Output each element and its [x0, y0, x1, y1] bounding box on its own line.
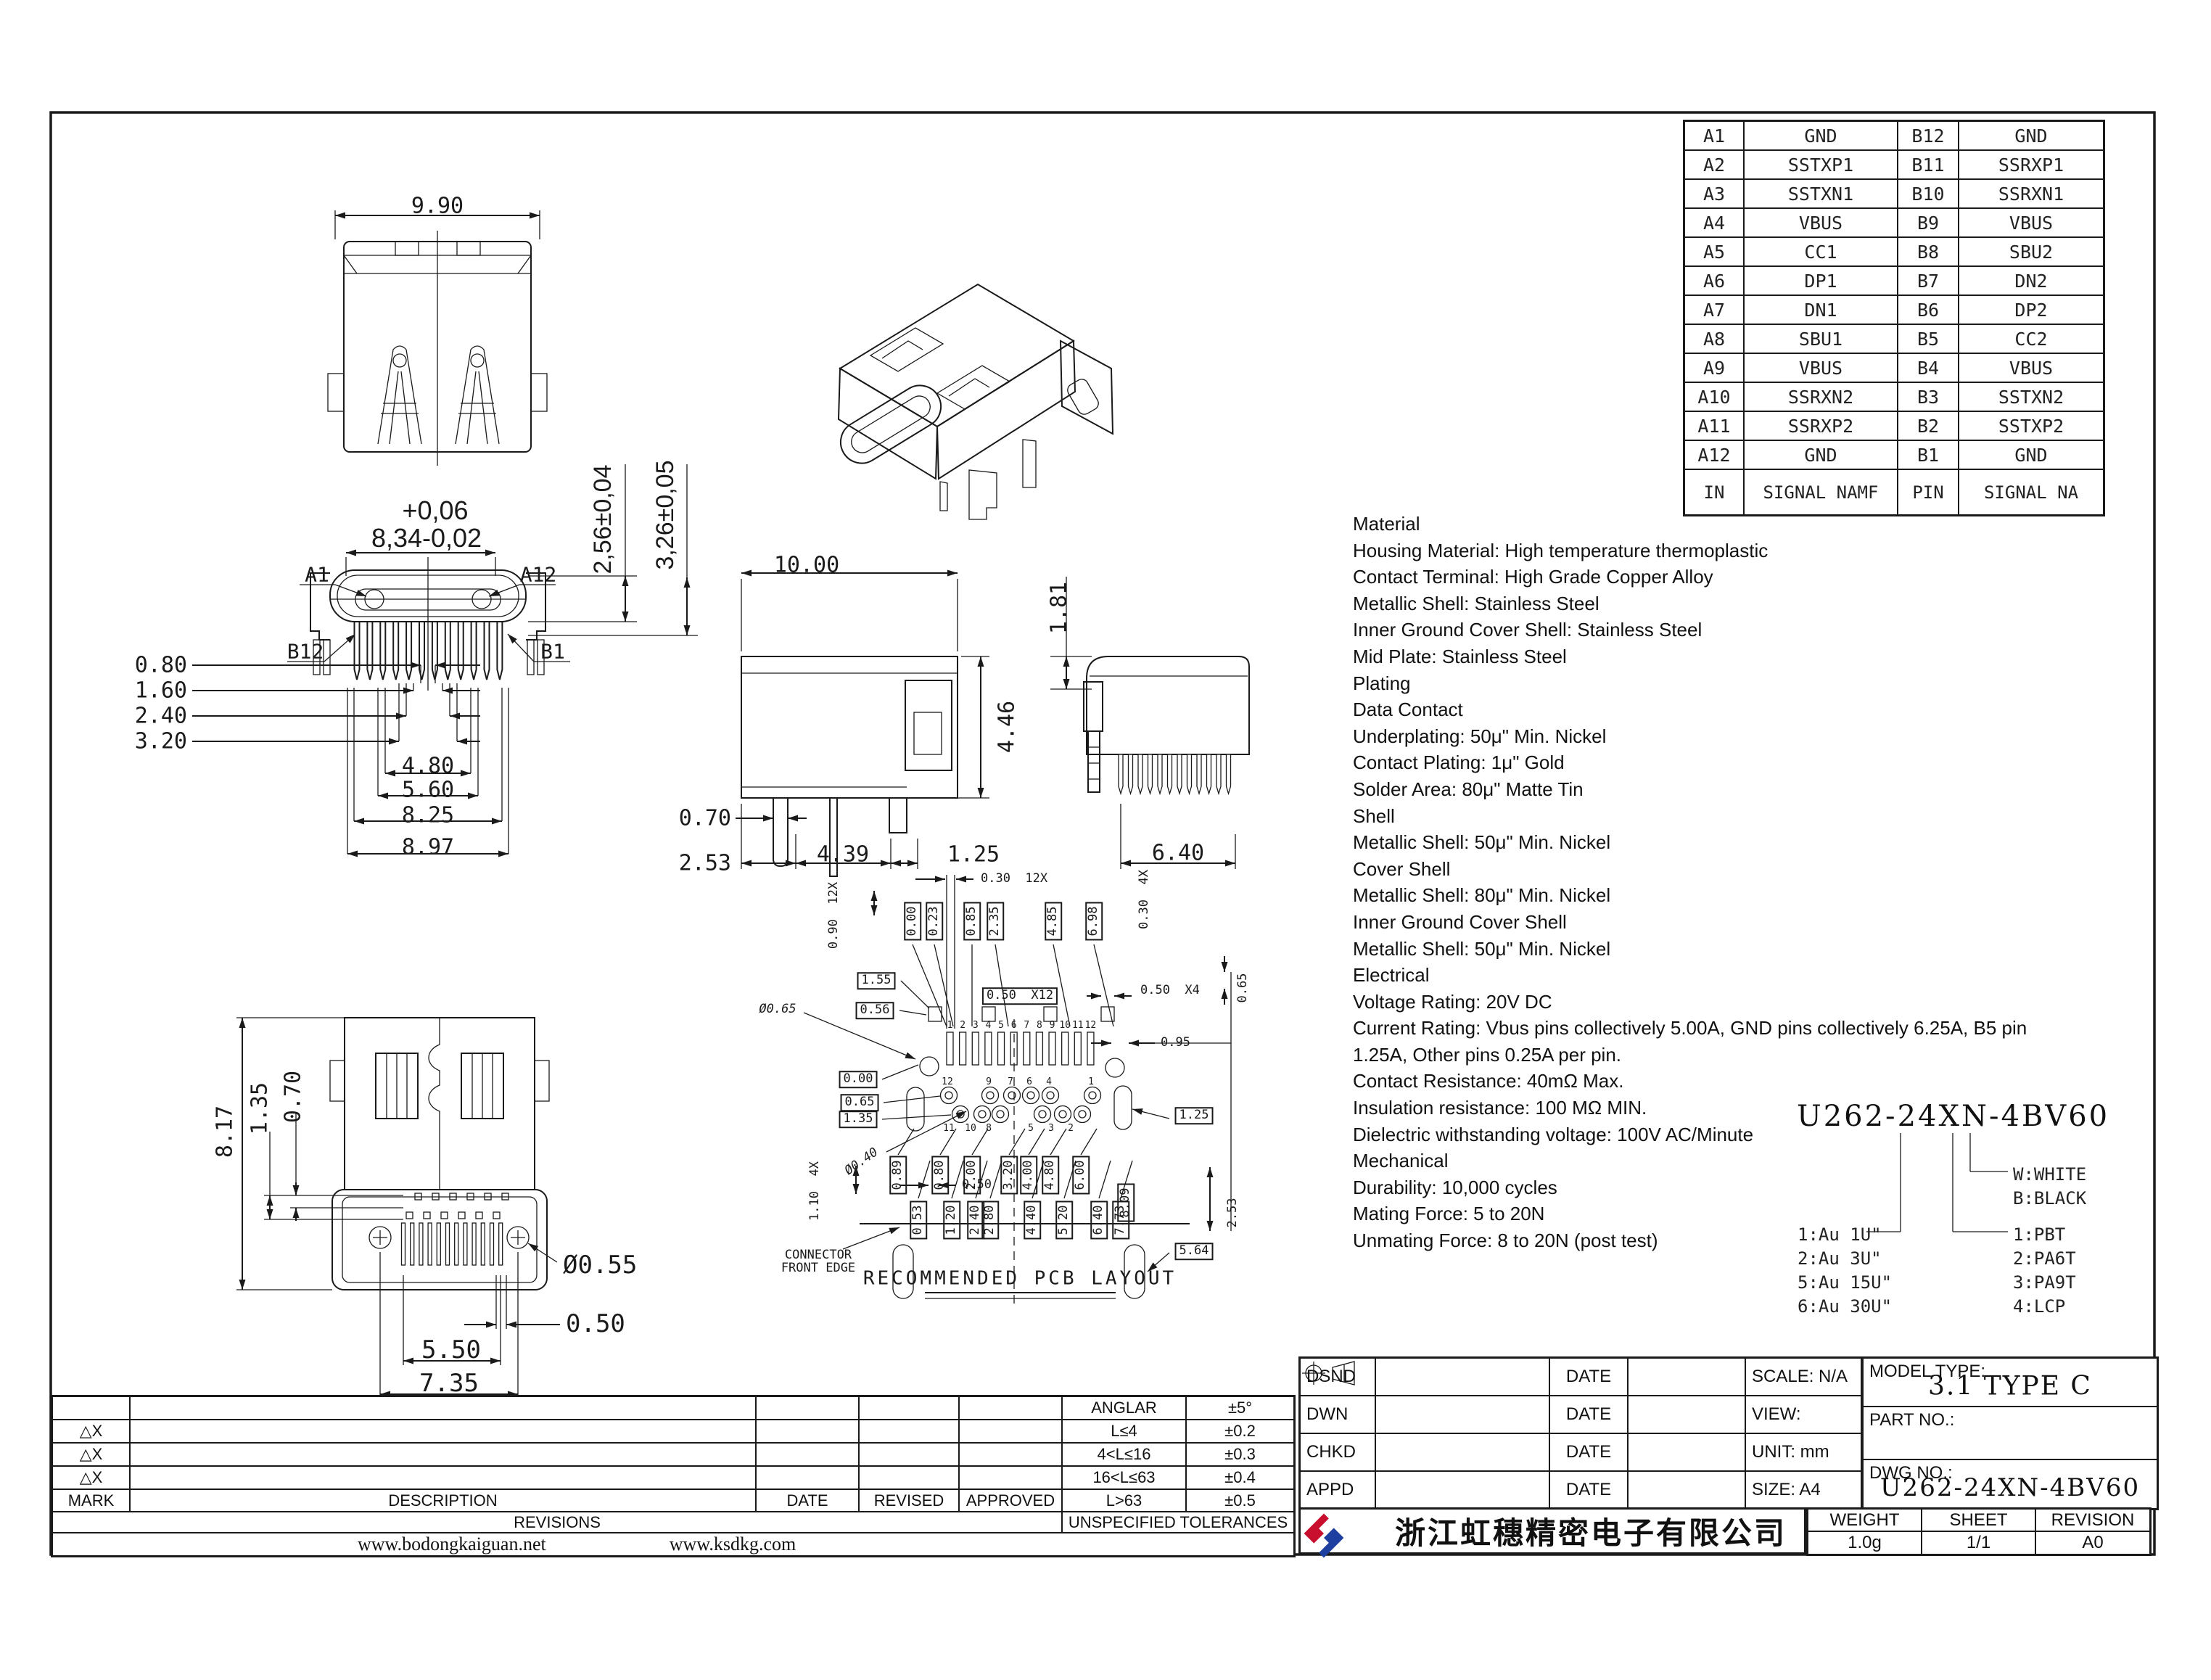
- dwg-no-cell: DWG NO.: U262-24XN-4BV60: [1864, 1460, 2157, 1508]
- part-code-housing-legend: 1:PBT2:PA6T3:PA9T4:LCP: [2013, 1223, 2076, 1319]
- pin-signal-cell: SSRXN1: [1959, 180, 2103, 207]
- pin-signal-cell: SBU1: [1745, 325, 1897, 353]
- rev-cell: [131, 1467, 755, 1488]
- signoff-cell: [1629, 1434, 1745, 1470]
- material-note-line: Metallic Shell: 50μ" Min. Nickel: [1353, 936, 2158, 963]
- weight-value: 1.0g: [1808, 1532, 1921, 1554]
- rev-header-approved: APPROVED: [960, 1490, 1061, 1511]
- pin-signal-cell: DP2: [1959, 296, 2103, 324]
- material-note-line: Mid Plate: Stainless Steel: [1353, 643, 2158, 670]
- rev-cell: [131, 1420, 755, 1442]
- view-label: VIEW:: [1752, 1404, 1801, 1425]
- end-view: [1050, 577, 1249, 869]
- material-note-line: Contact Plating: 1μ" Gold: [1353, 749, 2158, 776]
- rev-cell: [53, 1397, 129, 1419]
- tolerance-label: 16<L≤63: [1063, 1467, 1185, 1488]
- pin-id-cell: A2: [1685, 151, 1743, 178]
- pin-id-cell: B11: [1898, 151, 1958, 178]
- part-code-option: 6:Au 30U": [1798, 1295, 1892, 1319]
- signoff-cell: [1629, 1396, 1745, 1433]
- pin-table-header: PIN: [1898, 470, 1958, 514]
- material-note-line: 1.25A, Other pins 0.25A per pin.: [1353, 1042, 2158, 1068]
- date-label: DATE: [1550, 1359, 1627, 1395]
- pin-signal-cell: DN2: [1959, 267, 2103, 295]
- unit-label: UNIT: mm: [1746, 1434, 1861, 1470]
- pin-id-cell: A8: [1685, 325, 1743, 353]
- rev-cell: [960, 1420, 1061, 1442]
- material-note-line: Solder Area: 80μ" Matte Tin: [1353, 776, 2158, 803]
- tolerance-value: ±0.4: [1187, 1467, 1293, 1488]
- rev-cell: [960, 1444, 1061, 1465]
- title-block-signoff: DSND DATE SCALE: N/A DWN DATE VIEW: CHKD…: [1298, 1356, 1863, 1510]
- pin-signal-cell: SSTXN1: [1745, 180, 1897, 207]
- rev-header-description: DESCRIPTION: [131, 1490, 755, 1511]
- view-cell: VIEW:: [1746, 1396, 1861, 1433]
- pin-signal-cell: SSTXP2: [1959, 412, 2103, 440]
- material-note-line: Underplating: 50μ" Min. Nickel: [1353, 723, 2158, 750]
- revisions-table: ANGLAR ±5° △X L≤4 ±0.2 △X 4<L≤16 ±0.3 △X…: [51, 1395, 1296, 1557]
- material-note-line: Shell: [1353, 803, 2158, 830]
- tolerance-label: L≤4: [1063, 1420, 1185, 1442]
- pin-id-cell: B4: [1898, 354, 1958, 382]
- pin-table-header: SIGNAL NA: [1959, 470, 2103, 514]
- pcb-layout: [804, 875, 1231, 1306]
- pin-id-cell: B5: [1898, 325, 1958, 353]
- website-row: www.bodongkaiguan.net www.ksdkg.com: [53, 1533, 1293, 1555]
- part-code-option: 3:PA9T: [2013, 1271, 2076, 1295]
- material-note-line: Material: [1353, 511, 2158, 538]
- front-view: [287, 464, 698, 691]
- part-code-option: 1:PBT: [2013, 1223, 2076, 1247]
- pin-signal-cell: DN1: [1745, 296, 1897, 324]
- rev-mark: △X: [53, 1467, 129, 1488]
- pin-signal-cell: GND: [1959, 122, 2103, 149]
- material-note-line: Inner Ground Cover Shell: [1353, 909, 2158, 936]
- tolerance-value: ±0.2: [1187, 1420, 1293, 1442]
- model-type-cell: MODEL TYPE: 3.1 TYPE C: [1864, 1359, 2157, 1406]
- pin-id-cell: B1: [1898, 441, 1958, 469]
- signoff-appd: APPD: [1301, 1472, 1375, 1508]
- weight-sheet-revision-table: WEIGHT SHEET REVISION 1.0g 1/1 A0: [1806, 1507, 2152, 1556]
- pin-signal-cell: SSTXP1: [1745, 151, 1897, 178]
- material-note-line: Plating: [1353, 670, 2158, 697]
- pin-signal-cell: SSRXN2: [1745, 383, 1897, 411]
- tolerance-value: ±5°: [1187, 1397, 1293, 1419]
- pin-signal-cell: SSTXN2: [1959, 383, 2103, 411]
- side-view: [736, 573, 989, 876]
- pin-id-cell: A12: [1685, 441, 1743, 469]
- pin-id-cell: A6: [1685, 267, 1743, 295]
- part-code-option: 1:Au 1U": [1798, 1223, 1892, 1247]
- material-note-line: Contact Resistance: 40mΩ Max.: [1353, 1068, 2158, 1095]
- pin-id-cell: A3: [1685, 180, 1743, 207]
- drawing-sheet: 9.90 +0,06 8,34-0,02 A1 A12 B12 B1 2,56±…: [0, 0, 2211, 1680]
- rev-cell: [960, 1397, 1061, 1419]
- sheet-label: SHEET: [1922, 1510, 2035, 1531]
- isometric-view: [833, 284, 1113, 519]
- part-code-option: 2:Au 3U": [1798, 1247, 1892, 1271]
- part-code-option: 4:LCP: [2013, 1295, 2076, 1319]
- pin-id-cell: B3: [1898, 383, 1958, 411]
- signoff-cell: [1376, 1359, 1549, 1395]
- rev-cell: [757, 1444, 858, 1465]
- pin-signal-table: A1GNDB12GNDA2SSTXP1B11SSRXP1A3SSTXN1B10S…: [1683, 120, 2105, 516]
- website-1: www.bodongkaiguan.net: [358, 1533, 546, 1555]
- pin-id-cell: A1: [1685, 122, 1743, 149]
- pin-id-cell: B9: [1898, 209, 1958, 236]
- rev-header-date: DATE: [757, 1490, 858, 1511]
- date-label: DATE: [1550, 1396, 1627, 1433]
- date-label: DATE: [1550, 1434, 1627, 1470]
- pin-signal-cell: VBUS: [1745, 354, 1897, 382]
- signoff-cell: [1629, 1472, 1745, 1508]
- signoff-cell: [1376, 1434, 1549, 1470]
- pin-id-cell: B6: [1898, 296, 1958, 324]
- material-note-line: Housing Material: High temperature therm…: [1353, 538, 2158, 564]
- top-view: [328, 210, 547, 466]
- rev-cell: [860, 1420, 958, 1442]
- signoff-dwn: DWN: [1301, 1396, 1375, 1433]
- scale-label: SCALE: N/A: [1746, 1359, 1861, 1395]
- pin-signal-cell: VBUS: [1959, 209, 2103, 236]
- part-code-option: 2:PA6T: [2013, 1247, 2076, 1271]
- bottom-view: [236, 1018, 560, 1399]
- rev-cell: [757, 1467, 858, 1488]
- part-code: U262-24XN-4BV60: [1797, 1100, 2109, 1133]
- pin-signal-cell: GND: [1959, 441, 2103, 469]
- pin-signal-cell: SSRXP1: [1959, 151, 2103, 178]
- signoff-cell: [1629, 1359, 1745, 1395]
- tolerances-title: UNSPECIFIED TOLERANCES: [1063, 1512, 1293, 1532]
- company-name: 浙江虹穗精密电子有限公司: [1395, 1509, 1787, 1553]
- pin-id-cell: A10: [1685, 383, 1743, 411]
- rev-mark: △X: [53, 1420, 129, 1442]
- tolerance-label: ANGLAR: [1063, 1397, 1185, 1419]
- pin-id-cell: A4: [1685, 209, 1743, 236]
- part-code-plating-legend: 1:Au 1U"2:Au 3U"5:Au 15U"6:Au 30U": [1798, 1223, 1892, 1319]
- signoff-chkd: CHKD: [1301, 1434, 1375, 1470]
- rev-cell: [860, 1467, 958, 1488]
- signoff-cell: [1376, 1472, 1549, 1508]
- material-note-line: Current Rating: Vbus pins collectively 5…: [1353, 1015, 2158, 1042]
- rev-cell: [960, 1467, 1061, 1488]
- pin-id-cell: B10: [1898, 180, 1958, 207]
- date-label: DATE: [1550, 1472, 1627, 1508]
- rev-cell: [860, 1397, 958, 1419]
- pin-signal-cell: DP1: [1745, 267, 1897, 295]
- tolerance-label: 4<L≤16: [1063, 1444, 1185, 1465]
- material-note-line: Metallic Shell: 50μ" Min. Nickel: [1353, 829, 2158, 856]
- pin-signal-cell: VBUS: [1745, 209, 1897, 236]
- pin-table-header: SIGNAL NAMF: [1745, 470, 1897, 514]
- part-code-option: B:BLACK: [2013, 1187, 2086, 1211]
- rev-cell: [757, 1397, 858, 1419]
- material-note-line: Cover Shell: [1353, 856, 2158, 883]
- revision-value: A0: [2036, 1532, 2149, 1554]
- pin-signal-cell: CC2: [1959, 325, 2103, 353]
- rev-cell: [131, 1397, 755, 1419]
- material-note-line: Contact Terminal: High Grade Copper Allo…: [1353, 564, 2158, 590]
- pin-signal-cell: VBUS: [1959, 354, 2103, 382]
- material-note-line: Metallic Shell: Stainless Steel: [1353, 590, 2158, 617]
- pin-id-cell: B2: [1898, 412, 1958, 440]
- part-code-option: W:WHITE: [2013, 1163, 2086, 1187]
- dwg-no-value: U262-24XN-4BV60: [1880, 1473, 2140, 1502]
- material-note-line: Data Contact: [1353, 696, 2158, 723]
- size-label: SIZE: A4: [1746, 1472, 1861, 1508]
- rev-cell: [860, 1444, 958, 1465]
- pin-signal-cell: GND: [1745, 122, 1897, 149]
- part-code-color-legend: W:WHITEB:BLACK: [2013, 1163, 2086, 1211]
- material-notes: MaterialHousing Material: High temperatu…: [1353, 511, 2158, 1254]
- signoff-cell: [1376, 1396, 1549, 1433]
- material-note-line: Electrical: [1353, 962, 2158, 989]
- pin-id-cell: A7: [1685, 296, 1743, 324]
- pin-signal-cell: SBU2: [1959, 238, 2103, 265]
- revision-label: REVISION: [2036, 1510, 2149, 1531]
- weight-label: WEIGHT: [1808, 1510, 1921, 1531]
- tolerance-value: ±0.5: [1187, 1490, 1293, 1511]
- pin-signal-cell: GND: [1745, 441, 1897, 469]
- model-type-value: 3.1 TYPE C: [1928, 1371, 2092, 1401]
- pin-signal-cell: SSRXP2: [1745, 412, 1897, 440]
- part-no-label: PART NO.:: [1869, 1410, 1954, 1430]
- rev-cell: [131, 1444, 755, 1465]
- rev-header-mark: MARK: [53, 1490, 129, 1511]
- material-note-line: Inner Ground Cover Shell: Stainless Stee…: [1353, 617, 2158, 643]
- pin-id-cell: B8: [1898, 238, 1958, 265]
- material-note-line: Metallic Shell: 80μ" Min. Nickel: [1353, 882, 2158, 909]
- projection-symbol-icon: [1301, 1359, 1360, 1388]
- title-block-ids: MODEL TYPE: 3.1 TYPE C PART NO.: DWG NO.…: [1861, 1356, 2159, 1510]
- material-note-line: Voltage Rating: 20V DC: [1353, 989, 2158, 1016]
- pin-id-cell: A11: [1685, 412, 1743, 440]
- pin-id-cell: A9: [1685, 354, 1743, 382]
- pin-table-header: IN: [1685, 470, 1743, 514]
- pin-signal-cell: CC1: [1745, 238, 1897, 265]
- revisions-title: REVISIONS: [53, 1512, 1061, 1532]
- company-logo-icon: [1301, 1510, 1347, 1562]
- tolerance-label: L>63: [1063, 1490, 1185, 1511]
- part-code-option: 5:Au 15U": [1798, 1271, 1892, 1295]
- sheet-value: 1/1: [1922, 1532, 2035, 1554]
- pin-id-cell: B12: [1898, 122, 1958, 149]
- part-no-cell: PART NO.:: [1864, 1407, 2157, 1459]
- tolerance-value: ±0.3: [1187, 1444, 1293, 1465]
- rev-cell: [757, 1420, 858, 1442]
- rev-mark: △X: [53, 1444, 129, 1465]
- pin-id-cell: B7: [1898, 267, 1958, 295]
- rev-header-revised: REVISED: [860, 1490, 958, 1511]
- pin-id-cell: A5: [1685, 238, 1743, 265]
- company-cell: 浙江虹穗精密电子有限公司: [1298, 1507, 1806, 1555]
- website-2: www.ksdkg.com: [670, 1533, 796, 1555]
